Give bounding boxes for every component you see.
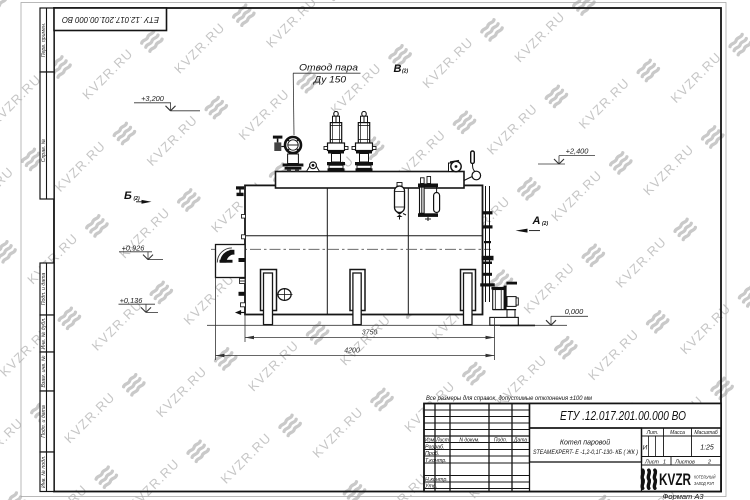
svg-text:(2): (2) — [402, 69, 408, 75]
svg-text:STEAMEXPERT- Е -1,2-0,1Г-130-: STEAMEXPERT- Е -1,2-0,1Г-130- КБ ( ЖК ) — [533, 450, 638, 456]
svg-text:Проб.: Проб. — [425, 451, 439, 457]
svg-text:Отвод пара: Отвод пара — [299, 63, 358, 74]
svg-text:Перв. примен.: Перв. примен. — [41, 23, 47, 57]
svg-text:KVZR: KVZR — [659, 470, 691, 489]
svg-text:Формат А3: Формат А3 — [662, 492, 704, 500]
svg-text:Масса: Масса — [670, 430, 685, 436]
svg-text:Дата: Дата — [513, 437, 527, 443]
svg-text:И: И — [643, 445, 648, 452]
svg-text:Изм: Изм — [425, 437, 435, 443]
svg-text:+0,926: +0,926 — [122, 244, 146, 253]
svg-text:Подп. и дата: Подп. и дата — [41, 405, 47, 438]
svg-text:Б: Б — [124, 190, 132, 202]
svg-text:Масштаб: Масштаб — [694, 430, 718, 436]
svg-text:Все размеры для справок, допус: Все размеры для справок, допустимые откл… — [426, 394, 592, 402]
svg-text:1: 1 — [663, 460, 666, 466]
svg-text:1:25: 1:25 — [700, 445, 714, 452]
svg-text:Взам. инв. №: Взам. инв. № — [41, 355, 47, 387]
svg-text:2: 2 — [707, 460, 711, 466]
svg-text:А: А — [532, 215, 541, 227]
svg-text:(2): (2) — [134, 196, 140, 202]
svg-text:Листов: Листов — [674, 460, 695, 466]
svg-text:Подп.: Подп. — [494, 437, 507, 443]
svg-text:3750: 3750 — [362, 330, 378, 337]
svg-text:Инв. № подл.: Инв. № подл. — [41, 456, 47, 488]
svg-text:0,000: 0,000 — [565, 307, 584, 316]
svg-text:Утв.: Утв. — [424, 484, 437, 490]
svg-text:Лит.: Лит. — [646, 430, 659, 436]
svg-text:В: В — [394, 63, 402, 75]
svg-text:Справ. №: Справ. № — [41, 138, 47, 162]
svg-text:ЗАВОД РЭП: ЗАВОД РЭП — [694, 481, 715, 486]
svg-text:Лист: Лист — [644, 460, 659, 466]
svg-text:4200: 4200 — [344, 348, 360, 355]
svg-text:Котел паровой: Котел паровой — [560, 439, 610, 447]
svg-text:Ду 150: Ду 150 — [313, 75, 347, 86]
svg-text:КОТЕЛЬНЫЙ: КОТЕЛЬНЫЙ — [694, 473, 716, 480]
svg-text:Инв. № дубл.: Инв. № дубл. — [41, 318, 47, 350]
svg-text:+3,200: +3,200 — [141, 94, 165, 103]
svg-text:N докум.: N докум. — [459, 437, 479, 443]
svg-text:ЕТУ .12.017.201.00.000 ВО: ЕТУ .12.017.201.00.000 ВО — [560, 409, 686, 423]
svg-text:+2,400: +2,400 — [566, 147, 590, 156]
svg-text:Лист: Лист — [435, 437, 449, 443]
svg-text:ЕТУ .12.017.201.00.000 ВО: ЕТУ .12.017.201.00.000 ВО — [62, 15, 159, 25]
svg-text:Подп. и дата: Подп. и дата — [41, 273, 47, 306]
svg-text:(2): (2) — [542, 221, 548, 227]
svg-text:Н.контр.: Н.контр. — [425, 477, 448, 483]
svg-text:Разраб.: Разраб. — [425, 444, 445, 450]
svg-text:+0,136: +0,136 — [120, 296, 144, 305]
svg-text:Т.контр.: Т.контр. — [425, 458, 447, 464]
